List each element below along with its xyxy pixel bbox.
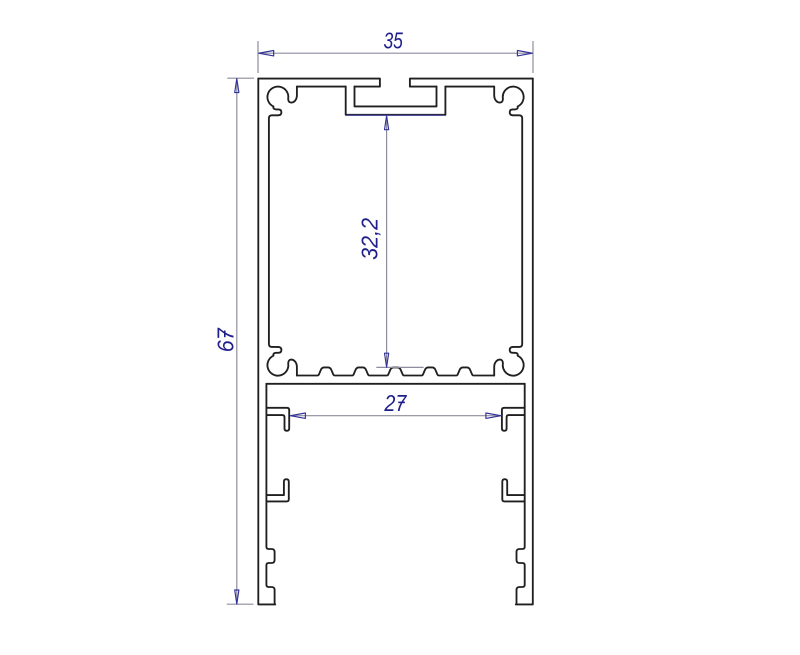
svg-text:32,2: 32,2: [356, 218, 382, 260]
svg-text:27: 27: [384, 390, 408, 416]
svg-text:35: 35: [383, 28, 403, 54]
